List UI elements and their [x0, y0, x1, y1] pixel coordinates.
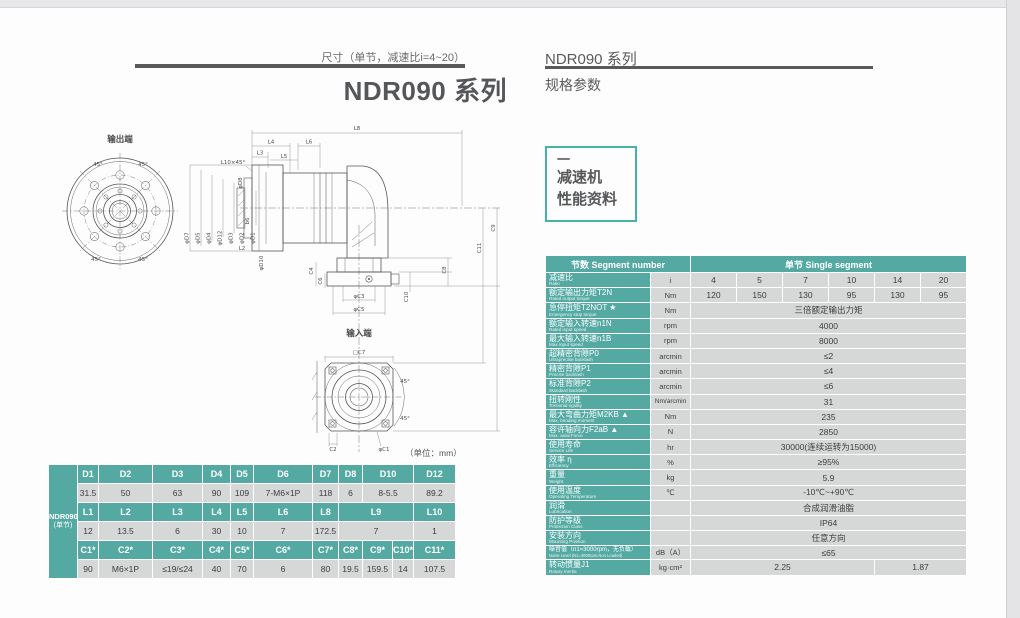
- spec-row: 扭转刚性Torsional rigidity Nm/arcmin 31: [546, 394, 967, 409]
- spec-row-inertia: 转动惯量J1Rotary Inertia kg·cm² 2.25 1.87: [546, 560, 967, 575]
- dim-value: 1: [414, 522, 456, 541]
- spec-row-torque: 额定输出力矩T2NRated output torque Nm 120 150 …: [546, 288, 967, 303]
- dim-value: 109: [231, 484, 254, 503]
- spec-unit: i: [651, 273, 691, 288]
- chapter-line1: 减速机: [557, 167, 635, 189]
- spec-value: 14: [875, 273, 921, 288]
- spec-label: 噪音值（n1=3000rpm，无负载）Noise Level (N1=3000r…: [546, 546, 651, 560]
- spec-row: 效率 ηEfficiency % ≥95%: [546, 455, 967, 470]
- dim-header: C2*: [99, 541, 153, 560]
- dim-value: 118: [313, 484, 339, 503]
- spec-label: 扭转刚性Torsional rigidity: [546, 394, 651, 409]
- dim-header: C9*: [363, 541, 393, 560]
- dim-value: 90: [78, 560, 99, 579]
- spec-unit: kg·cm²: [651, 560, 691, 575]
- dim-label: φC3: [354, 294, 365, 300]
- spec-label: 额定输出力矩T2NRated output torque: [546, 288, 651, 303]
- spec-value: 合成润滑油脂: [691, 500, 967, 515]
- dim-label: φD5: [196, 232, 202, 244]
- spec-unit: [651, 531, 691, 546]
- spec-label: 急停扭矩T2NOT ★Emergency stop torque: [546, 303, 651, 318]
- output-end-label: 输出端: [107, 134, 133, 145]
- title-rule: [135, 64, 465, 68]
- spec-value: ≥95%: [691, 455, 967, 470]
- spec-label: 使用寿命Service Life: [546, 440, 651, 455]
- chapter-number: 一: [557, 153, 635, 167]
- dim-header: C6*: [254, 541, 313, 560]
- spec-unit: rpm: [651, 333, 691, 348]
- spec-row: 容许轴向力F2aB ▲Max. axial Force N 2850: [546, 424, 967, 439]
- dim-value: 14: [393, 560, 414, 579]
- spec-header-left: 节数 Segment number: [546, 256, 691, 273]
- dim-label: φC1: [379, 447, 390, 453]
- page-edge-strip: [1006, 0, 1020, 618]
- dim-header-row-c: C1* C2* C3* C4* C5* C6* C7* C8* C9* C10*…: [49, 541, 456, 560]
- spec-unit: arcmin: [651, 379, 691, 394]
- spec-value: 95: [829, 288, 875, 303]
- dim-header: L2: [99, 503, 153, 522]
- spec-unit: arcmin: [651, 348, 691, 363]
- spec-header-right: 单节 Single segment: [691, 256, 967, 273]
- spec-value: 95: [921, 288, 967, 303]
- dim-header: C10*: [393, 541, 414, 560]
- spec-value: 150: [737, 288, 783, 303]
- model-name: NDR090: [49, 512, 77, 521]
- angle-label: 45°: [93, 162, 103, 168]
- dim-header: D10: [363, 465, 414, 484]
- spec-value: ≤2: [691, 348, 967, 363]
- dim-value: 6: [153, 522, 203, 541]
- dim-header: L6: [254, 503, 313, 522]
- dim-value: 30: [203, 522, 231, 541]
- spec-value: 130: [783, 288, 829, 303]
- dim-label: φD10: [259, 255, 265, 270]
- input-end-label: 输入端: [346, 328, 372, 339]
- dim-header: C1*: [78, 541, 99, 560]
- spec-label: 容许轴向力F2aB ▲Max. axial Force: [546, 424, 651, 439]
- spec-unit: Nm: [651, 409, 691, 424]
- spec-value: 8000: [691, 333, 967, 348]
- dim-label: φD4: [207, 232, 213, 244]
- dim-value: 6: [339, 484, 363, 503]
- title-rule-right: [545, 66, 873, 69]
- spec-label: 防护等级Protection Class: [546, 516, 651, 531]
- spec-value: 130: [875, 288, 921, 303]
- dim-header: D8: [339, 465, 363, 484]
- dim-value: 89.2: [414, 484, 456, 503]
- dim-header: D4: [203, 465, 231, 484]
- spec-label: 安装方向Mounting Position: [546, 531, 651, 546]
- angle-label: 45°: [138, 257, 148, 263]
- dim-value: 90: [203, 484, 231, 503]
- dim-header: L10: [414, 503, 456, 522]
- spec-value: ≤6: [691, 379, 967, 394]
- spec-row: 超精密背隙P0Ultraprecise backlash arcmin ≤2: [546, 348, 967, 363]
- spec-header-row: 节数 Segment number 单节 Single segment: [546, 256, 967, 273]
- spec-value: 31: [691, 394, 967, 409]
- spec-unit: kg: [651, 470, 691, 485]
- dim-header-row-d: NDR090 (单节) D1 D2 D3 D4 D5 D6 D7 D8 D10 …: [49, 465, 456, 484]
- dim-label: C4: [309, 267, 315, 275]
- dim-label: □C7: [353, 350, 366, 356]
- dim-header: L1: [78, 503, 99, 522]
- dim-label: φD8: [238, 177, 244, 189]
- spec-row: 额定输入转速n1NRated input speed rpm 4000: [546, 318, 967, 333]
- dim-header: C5*: [231, 541, 254, 560]
- dim-label: φD12: [218, 231, 224, 246]
- spec-row: 精密背隙P1Precise backlash arcmin ≤4: [546, 364, 967, 379]
- spec-row: 最大输入转速n1BMax input speed rpm 8000: [546, 333, 967, 348]
- chapter-tab: 一 减速机 性能资料: [545, 146, 637, 222]
- dim-value: 7: [254, 522, 313, 541]
- dim-label: φC5: [354, 307, 365, 313]
- dim-header: D6: [254, 465, 313, 484]
- spec-unit: ℃: [651, 485, 691, 500]
- dim-value: 7-M6×1P: [254, 484, 313, 503]
- dim-value-row-c: 90 M6×1P ≤19/≤24 40 70 6 80 19.5 159.5 1…: [49, 560, 456, 579]
- spec-unit: arcmin: [651, 364, 691, 379]
- dim-value: 63: [153, 484, 203, 503]
- technical-drawing: 输出端 输入端 45° 45° 45° 45° L8 L4 L6 L3 L5 L…: [40, 100, 510, 460]
- spec-value: -10℃~+90℃: [691, 485, 967, 500]
- spec-label: 使用温度Operating Temperature: [546, 485, 651, 500]
- spec-label: 减速比Ratio: [546, 273, 651, 288]
- dimension-subtitle: 尺寸（单节，减速比i=4~20）: [135, 49, 465, 65]
- dim-header-row-l: L1 L2 L3 L4 L5 L6 L8 L9 L10: [49, 503, 456, 522]
- angle-label: 45°: [91, 257, 101, 263]
- dim-header: L5: [231, 503, 254, 522]
- dim-value: 6: [254, 560, 313, 579]
- spec-value: 三倍额定输出力矩: [691, 303, 967, 318]
- spec-value: 235: [691, 409, 967, 424]
- unit-note: （单位：mm）: [405, 447, 495, 459]
- dim-label: φD7: [185, 232, 191, 244]
- spec-label: 重量Weight: [546, 470, 651, 485]
- angle-label: 45°: [400, 416, 410, 422]
- model-sub: (单节): [49, 522, 77, 531]
- dim-value: 8-5.5: [363, 484, 414, 503]
- spec-unit: Nm: [651, 303, 691, 318]
- spec-value: 1.87: [875, 560, 967, 575]
- spec-unit: rpm: [651, 318, 691, 333]
- dim-label: C8: [442, 266, 448, 274]
- spec-label: 超精密背隙P0Ultraprecise backlash: [546, 348, 651, 363]
- dim-value: 13.5: [99, 522, 153, 541]
- spec-label: 额定输入转速n1NRated input speed: [546, 318, 651, 333]
- dim-value: 31.5: [78, 484, 99, 503]
- spec-unit: Nm: [651, 288, 691, 303]
- dim-value: ≤19/≤24: [153, 560, 203, 579]
- spec-unit: Nm/arcmin: [651, 394, 691, 409]
- spec-row: 润滑Lubrication 合成润滑油脂: [546, 500, 967, 515]
- dim-label: C2: [329, 447, 336, 453]
- dim-header: C3*: [153, 541, 203, 560]
- spec-label: 最大输入转速n1BMax input speed: [546, 333, 651, 348]
- spec-value: 10: [829, 273, 875, 288]
- spec-row: 使用温度Operating Temperature ℃ -10℃~+90℃: [546, 485, 967, 500]
- dim-value: 40: [203, 560, 231, 579]
- dim-label: φD2: [240, 232, 246, 243]
- spec-value: 4000: [691, 318, 967, 333]
- dim-label: L10×45°: [221, 160, 246, 166]
- catalog-page: 尺寸（单节，减速比i=4~20） NDR090 系列 NDR090 系列 规格参…: [0, 0, 1020, 618]
- dim-label: C10: [404, 291, 410, 302]
- angle-label: 45°: [400, 379, 410, 385]
- spec-row-ratio: 减速比Ratio i 4 5 7 10 14 20: [546, 273, 967, 288]
- angle-label: 45°: [138, 162, 148, 168]
- spec-table: 节数 Segment number 单节 Single segment 减速比R…: [545, 255, 967, 576]
- spec-value: 5: [737, 273, 783, 288]
- spec-value: ≤4: [691, 364, 967, 379]
- chapter-line2: 性能资料: [557, 189, 635, 211]
- spec-value: IP64: [691, 516, 967, 531]
- spec-value: 任意方向: [691, 531, 967, 546]
- dim-value: 50: [99, 484, 153, 503]
- spec-value: 2.25: [691, 560, 875, 575]
- dim-value: 70: [231, 560, 254, 579]
- dim-value: 80: [313, 560, 339, 579]
- spec-value: 5.9: [691, 470, 967, 485]
- spec-label: 润滑Lubrication: [546, 500, 651, 515]
- window-top-bar: [0, 0, 1020, 8]
- dim-header: L9: [339, 503, 414, 522]
- dim-header: D2: [99, 465, 153, 484]
- spec-value: 30000(连续运转为15000): [691, 440, 967, 455]
- dim-label: C9: [491, 224, 497, 232]
- dim-label: φD1: [251, 232, 257, 243]
- dim-label: C11: [477, 243, 483, 254]
- spec-value: 4: [691, 273, 737, 288]
- dim-label: b6: [245, 217, 251, 224]
- spec-value: 120: [691, 288, 737, 303]
- dim-header: D1: [78, 465, 99, 484]
- spec-unit: hr: [651, 440, 691, 455]
- dim-header: L4: [203, 503, 231, 522]
- dim-header: D5: [231, 465, 254, 484]
- spec-label: 标准背隙P2Standard backlash: [546, 379, 651, 394]
- dim-header: C8*: [339, 541, 363, 560]
- model-cell: NDR090 (单节): [49, 465, 78, 579]
- dim-header: C4*: [203, 541, 231, 560]
- dim-label: L3: [257, 151, 264, 157]
- section-title: 规格参数: [545, 75, 601, 95]
- dim-header: D7: [313, 465, 339, 484]
- spec-value: 20: [921, 273, 967, 288]
- dim-label: L6: [306, 140, 313, 146]
- dim-value-row-d: 31.5 50 63 90 109 7-M6×1P 118 6 8-5.5 89…: [49, 484, 456, 503]
- dim-header: L3: [153, 503, 203, 522]
- dim-label: L8: [354, 126, 361, 132]
- dim-value: M6×1P: [99, 560, 153, 579]
- dim-header: L8: [313, 503, 339, 522]
- spec-row: 最大弯曲力矩M2KB ▲Max. bending moment Nm 235: [546, 409, 967, 424]
- dim-value: 10: [231, 522, 254, 541]
- spec-value: ≤65: [691, 546, 967, 560]
- dim-label: L2: [239, 246, 246, 252]
- spec-unit: N: [651, 424, 691, 439]
- spec-row: 标准背隙P2Standard backlash arcmin ≤6: [546, 379, 967, 394]
- dim-value: 12: [78, 522, 99, 541]
- spec-row: 安装方向Mounting Position 任意方向: [546, 531, 967, 546]
- dim-header: C7*: [313, 541, 339, 560]
- dim-value: 107.5: [414, 560, 456, 579]
- dim-label: L4: [268, 140, 275, 146]
- spec-label: 精密背隙P1Precise backlash: [546, 364, 651, 379]
- spec-value: 7: [783, 273, 829, 288]
- dim-value: 7: [339, 522, 414, 541]
- dim-label: L5: [281, 154, 288, 160]
- spec-unit: [651, 500, 691, 515]
- dim-value: 159.5: [363, 560, 393, 579]
- spec-unit: [651, 516, 691, 531]
- dim-header: D3: [153, 465, 203, 484]
- dimension-table: NDR090 (单节) D1 D2 D3 D4 D5 D6 D7 D8 D10 …: [48, 464, 456, 579]
- dim-header: D12: [414, 465, 456, 484]
- spec-row: 使用寿命Service Life hr 30000(连续运转为15000): [546, 440, 967, 455]
- dim-header: C11*: [414, 541, 456, 560]
- spec-unit: dB（A）: [651, 546, 691, 560]
- dim-value: 172.5: [313, 522, 339, 541]
- spec-unit: %: [651, 455, 691, 470]
- dim-value-row-l: 12 13.5 6 30 10 7 172.5 7 1: [49, 522, 456, 541]
- dim-label: φD3: [229, 232, 235, 244]
- spec-label: 最大弯曲力矩M2KB ▲Max. bending moment: [546, 409, 651, 424]
- spec-value: 2850: [691, 424, 967, 439]
- dim-label: C6: [318, 277, 324, 285]
- spec-label: 转动惯量J1Rotary Inertia: [546, 560, 651, 575]
- spec-row-noise: 噪音值（n1=3000rpm，无负载）Noise Level (N1=3000r…: [546, 546, 967, 560]
- spec-row: 重量Weight kg 5.9: [546, 470, 967, 485]
- spec-row: 急停扭矩T2NOT ★Emergency stop torque Nm 三倍额定…: [546, 303, 967, 318]
- spec-row: 防护等级Protection Class IP64: [546, 516, 967, 531]
- dim-value: 19.5: [339, 560, 363, 579]
- spec-label: 效率 ηEfficiency: [546, 455, 651, 470]
